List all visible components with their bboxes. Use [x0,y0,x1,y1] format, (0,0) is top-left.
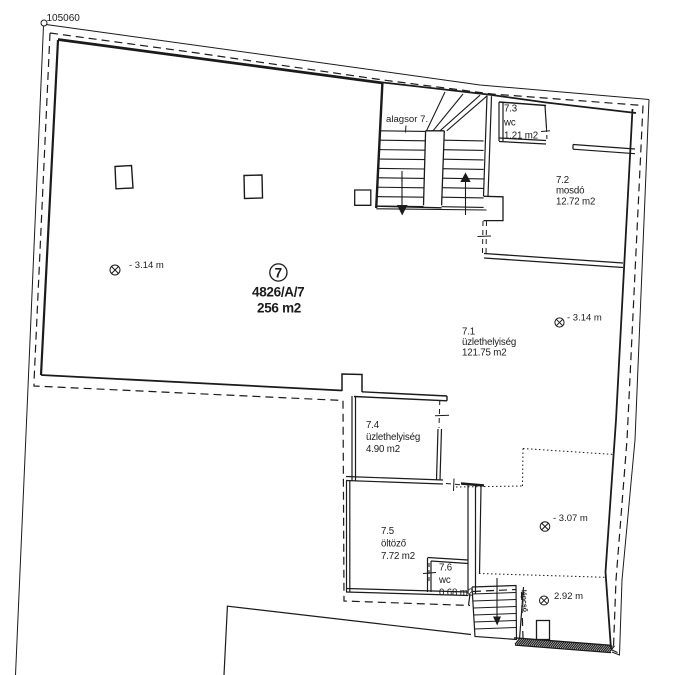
svg-text:7.4: 7.4 [366,420,380,431]
svg-text:wc: wc [438,575,451,586]
svg-text:7.3: 7.3 [504,104,517,115]
svg-text:4826/A/7: 4826/A/7 [252,285,304,300]
svg-text:2.92 m: 2.92 m [554,591,583,602]
svg-text:7.5: 7.5 [381,526,394,537]
svg-text:7.72 m2: 7.72 m2 [381,551,415,562]
svg-text:- 3.14 m: - 3.14 m [129,260,164,271]
svg-text:7: 7 [275,266,283,281]
svg-text:mosdó: mosdó [556,186,584,197]
svg-text:7.6: 7.6 [439,563,452,574]
svg-text:12.72 m2: 12.72 m2 [556,197,595,208]
svg-text:üzlethelyiség: üzlethelyiség [366,432,420,443]
svg-text:121.75 m2: 121.75 m2 [462,348,506,359]
svg-text:7.2: 7.2 [556,175,569,186]
svg-text:alagsor 7.: alagsor 7. [386,114,428,125]
svg-text:4.90 m2: 4.90 m2 [366,444,400,455]
svg-text:0.68 m2: 0.68 m2 [439,588,473,599]
svg-text:- 3.07 m: - 3.07 m [553,513,588,524]
svg-text:7.1: 7.1 [462,327,475,338]
svg-text:öltöző: öltöző [381,539,406,550]
svg-text:wc: wc [503,118,516,129]
svg-text:105060: 105060 [47,13,81,24]
svg-text:256 m2: 256 m2 [257,301,301,316]
svg-text:- 3.14 m: - 3.14 m [567,313,602,324]
svg-text:1.21 m2: 1.21 m2 [504,131,538,142]
